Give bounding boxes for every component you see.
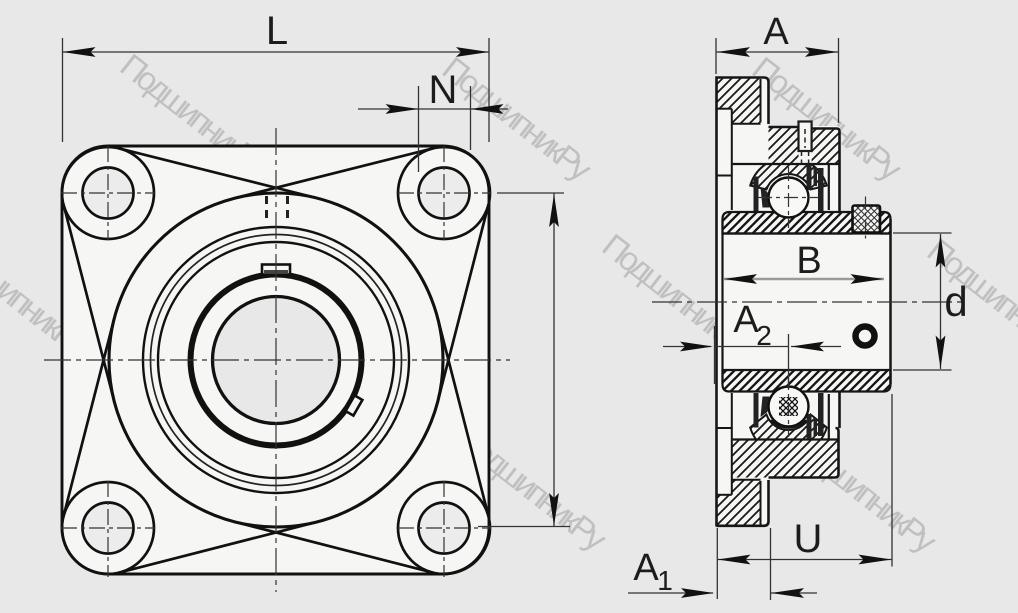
svg-text:N: N (429, 68, 458, 112)
svg-text:d: d (944, 278, 967, 325)
svg-text:A: A (633, 547, 659, 589)
svg-text:B: B (796, 240, 821, 282)
svg-text:1: 1 (657, 565, 673, 596)
svg-text:U: U (794, 517, 823, 561)
svg-text:2: 2 (756, 320, 772, 351)
svg-text:A: A (763, 11, 789, 53)
svg-text:L: L (266, 9, 288, 53)
